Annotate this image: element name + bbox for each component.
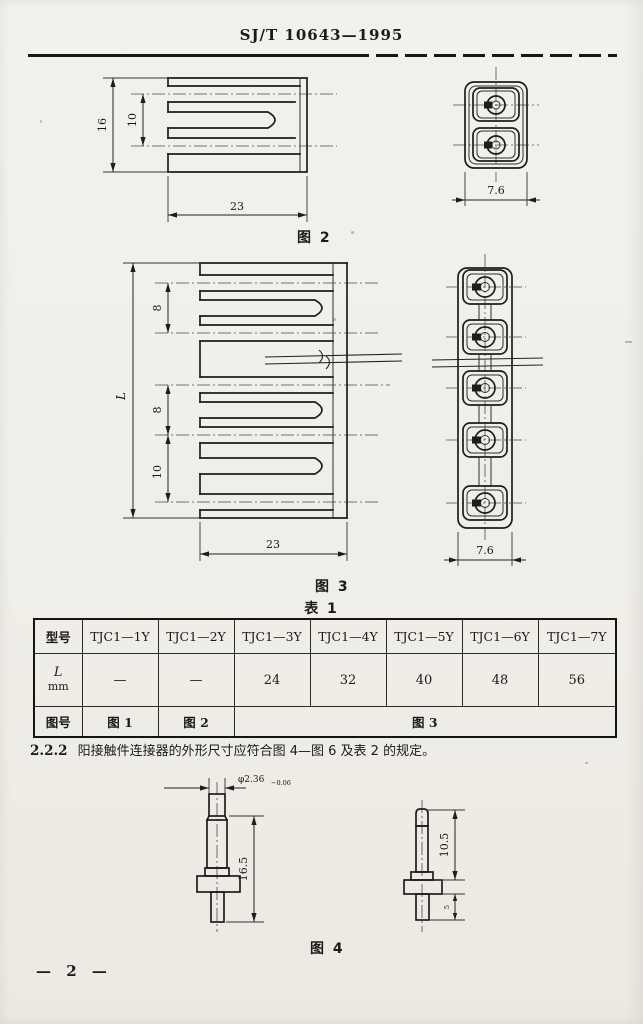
svg-text:−0.06: −0.06 [271, 779, 291, 787]
table1-length-value: 56 [538, 654, 616, 707]
fig2-dim-23: 23 [168, 176, 307, 222]
scan-speck [625, 341, 632, 343]
clause-2-2-2: 2.2.2阳接触件连接器的外形尺寸应符合图 4—图 6 及表 2 的规定。 [30, 742, 618, 762]
svg-text:16: 16 [96, 118, 109, 132]
fig3-dim-8-mid: 8 [151, 385, 171, 435]
svg-text:23: 23 [266, 538, 280, 551]
fig2-side-centerlines [453, 67, 539, 182]
table1-header-tjc1-6y: TJC1—6Y [462, 619, 538, 654]
table1-length-label-cell: L mm [34, 654, 82, 707]
clause-text: 阳接触件连接器的外形尺寸应符合图 4—图 6 及表 2 的规定。 [78, 744, 435, 759]
fig4-right-dim-10-5: 10.5 [428, 810, 465, 880]
table1-length-value: 48 [462, 654, 538, 707]
figure4-left-pin-drawing: φ2.36 −0.06 16.5 [150, 770, 310, 940]
table1-header-tjc1-7y: TJC1—7Y [538, 619, 616, 654]
header-rule [28, 54, 617, 57]
svg-text:7.6: 7.6 [487, 184, 505, 197]
table1-header-row: 型号 TJC1—1Y TJC1—2Y TJC1—3Y TJC1—4Y TJC1—… [34, 619, 616, 654]
table1-header-model: 型号 [34, 619, 82, 654]
figure2-caption: 图 2 [297, 227, 332, 247]
table1-length-value: — [82, 654, 158, 707]
fig4-left-dim-16-5: 16.5 [226, 816, 264, 922]
table1-header-tjc1-5y: TJC1—5Y [386, 619, 462, 654]
svg-text:16.5: 16.5 [237, 857, 250, 882]
svg-text:8: 8 [151, 407, 164, 414]
table1-figure-2: 图 2 [158, 707, 234, 738]
fig4-right-pin-body [404, 809, 442, 920]
fig3-body-outline [200, 263, 347, 518]
scan-speck [585, 762, 588, 764]
fig4-left-pin-body [197, 794, 240, 922]
svg-text:23: 23 [230, 200, 244, 213]
fig4-left-dim-diameter: φ2.36 −0.06 [164, 775, 291, 800]
fig3-dim-10: 10 [151, 435, 171, 502]
table1-length-value: 32 [310, 654, 386, 707]
table1-title: 表 1 [0, 598, 643, 618]
svg-text:10.5: 10.5 [438, 833, 451, 858]
svg-text:φ2.36: φ2.36 [238, 775, 265, 785]
table1-header-tjc1-4y: TJC1—4Y [310, 619, 386, 654]
figure4-caption: 图 4 [310, 938, 345, 958]
table1-length-value: 24 [234, 654, 310, 707]
figure2-front-view-drawing: 16 10 23 [85, 70, 345, 230]
table1-header-tjc1-3y: TJC1—3Y [234, 619, 310, 654]
table1-header-tjc1-1y: TJC1—1Y [82, 619, 158, 654]
svg-text:10: 10 [126, 113, 139, 127]
svg-text:8: 8 [151, 305, 164, 312]
table1-figure-3-span: 图 3 [234, 707, 616, 738]
svg-text:L: L [114, 392, 128, 401]
length-symbol: L [54, 666, 63, 681]
table1-figure-label: 图号 [34, 707, 82, 738]
clause-number: 2.2.2 [30, 743, 68, 759]
figure4-right-pin-drawing: 10.5 5 [375, 782, 495, 942]
scanned-document-page: SJ/T 10643—1995 16 [0, 0, 643, 1024]
figure3-side-view-drawing: 7.6 [430, 250, 550, 570]
scan-speck [333, 318, 336, 321]
table1-header-tjc1-2y: TJC1—2Y [158, 619, 234, 654]
table1-length-value: — [158, 654, 234, 707]
figure3-front-view-drawing: L 8 8 10 23 [95, 248, 415, 578]
table-1: 型号 TJC1—1Y TJC1—2Y TJC1—3Y TJC1—4Y TJC1—… [33, 618, 617, 738]
standard-number-header: SJ/T 10643—1995 [0, 26, 643, 44]
length-unit: mm [48, 681, 69, 694]
table1-length-row: L mm — — 24 32 40 48 56 [34, 654, 616, 707]
fig3-side-break-mark [432, 358, 543, 367]
figure3-caption: 图 3 [315, 576, 350, 596]
fig4-right-dim-tail: 5 [429, 894, 465, 920]
table1-figure-row: 图号 图 1 图 2 图 3 [34, 707, 616, 738]
fig3-dim-8-top: 8 [151, 283, 171, 333]
svg-text:7.6: 7.6 [476, 544, 494, 557]
fig2-body-outline [168, 78, 307, 172]
page-number: — 2 — [36, 962, 112, 980]
scan-speck [351, 231, 354, 234]
scan-speck [40, 120, 42, 123]
fig3-dim-23: 23 [200, 522, 347, 561]
figure2-side-view-drawing: 7.6 [440, 62, 560, 212]
table1-length-value: 40 [386, 654, 462, 707]
fig2-dim-10: 10 [126, 94, 146, 146]
table1-figure-1: 图 1 [82, 707, 158, 738]
svg-text:5: 5 [443, 905, 451, 909]
svg-text:10: 10 [151, 465, 164, 479]
